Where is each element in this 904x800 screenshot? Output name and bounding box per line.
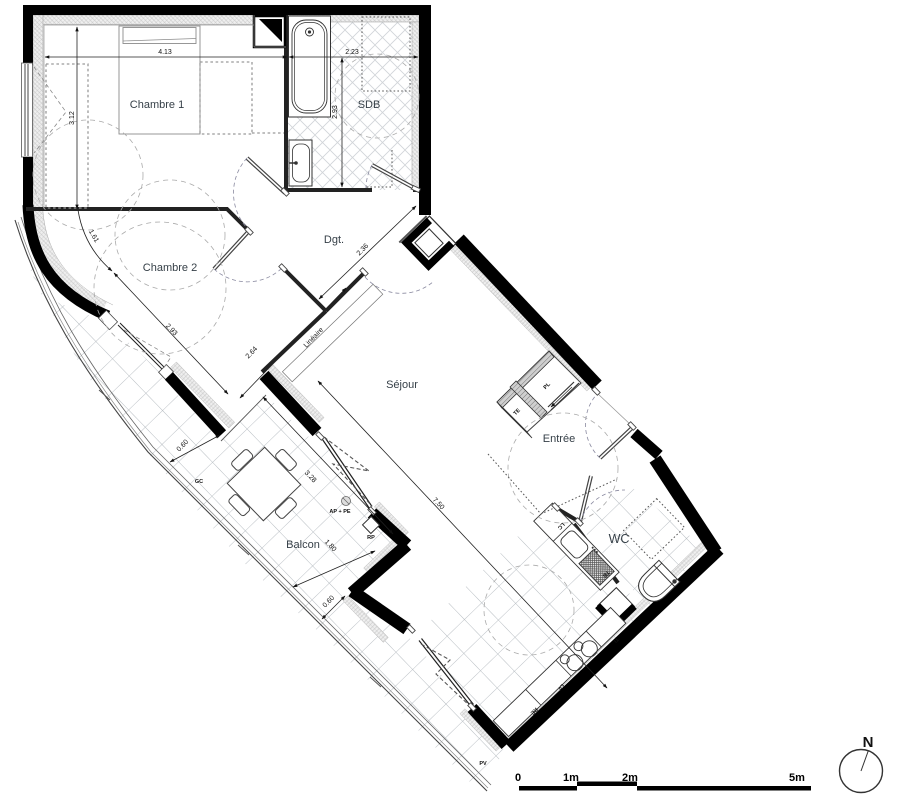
svg-text:0: 0 <box>515 772 521 784</box>
svg-text:3.12: 3.12 <box>69 111 76 125</box>
svg-text:2.36: 2.36 <box>356 243 371 258</box>
svg-text:Balcon: Balcon <box>286 539 320 551</box>
svg-text:Chambre 2: Chambre 2 <box>143 262 197 274</box>
svg-text:2.93: 2.93 <box>332 105 339 119</box>
svg-text:2.93: 2.93 <box>164 323 179 338</box>
svg-text:N: N <box>863 734 874 751</box>
svg-text:Séjour: Séjour <box>386 379 418 391</box>
svg-text:Entrée: Entrée <box>543 433 575 445</box>
svg-text:2.23: 2.23 <box>345 49 359 56</box>
svg-text:2.64: 2.64 <box>245 346 260 361</box>
svg-text:RP: RP <box>367 535 375 541</box>
svg-text:PV: PV <box>479 761 487 767</box>
svg-text:Chambre 1: Chambre 1 <box>130 99 184 111</box>
svg-text:GC: GC <box>195 479 203 485</box>
svg-text:1m: 1m <box>563 772 579 784</box>
svg-text:2m: 2m <box>622 772 638 784</box>
svg-text:Dgt.: Dgt. <box>324 234 344 246</box>
svg-text:4.13: 4.13 <box>158 49 172 56</box>
svg-text:SDB: SDB <box>358 99 381 111</box>
svg-text:5m: 5m <box>789 772 805 784</box>
svg-text:WC: WC <box>609 532 630 546</box>
svg-text:AP + PE: AP + PE <box>329 509 350 515</box>
